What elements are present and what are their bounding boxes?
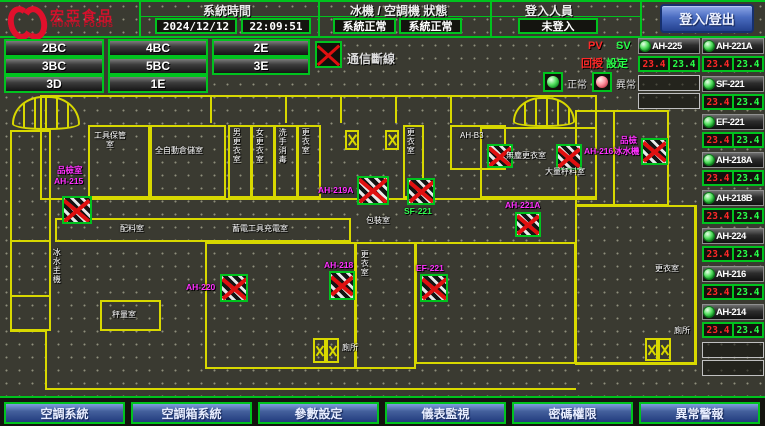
normal-led-icon [543, 72, 563, 92]
equipment-name: AH-218A [716, 155, 752, 166]
system-clock-value: 22:09:51 [241, 18, 311, 34]
room-label: 包裝室 [366, 216, 390, 225]
device-label: AH-215 [54, 177, 83, 187]
room-label: 冰水主機 [52, 248, 61, 284]
room-label: 配料室 [120, 224, 144, 233]
equipment-name: AH-224 [716, 231, 746, 242]
wall-segment [395, 97, 397, 123]
pv-value: 23.4 [704, 324, 732, 336]
pv-value: 23.4 [704, 58, 732, 70]
sv-value: 23.4 [732, 286, 762, 298]
device-alarm-icon-ah-221a[interactable] [515, 212, 541, 237]
sv-value: 23.4 [732, 172, 762, 184]
sv-value: 23.4 [732, 248, 762, 260]
equipment-name: AH-221A [716, 41, 752, 52]
nav-button-meter-monitor[interactable]: 儀表監視 [385, 402, 506, 424]
pv-value: 23.4 [704, 286, 732, 298]
pv-value: 23.4 [640, 58, 668, 70]
pv-value: 23.4 [704, 134, 732, 146]
equipment-values-ah-225: 23.4 23.4 [638, 56, 700, 72]
equipment-tile-ah-218b[interactable]: AH-218B [702, 190, 764, 206]
wall-segment [55, 218, 351, 242]
wall-segment [695, 205, 697, 364]
sv-value: 23.4 [732, 58, 762, 70]
pv-header: PV [588, 40, 603, 52]
system-date-value: 2024/12/12 [155, 18, 237, 34]
shaft-x-icon [658, 338, 671, 361]
room-label: 更衣室 [655, 264, 679, 273]
system-time-label: 系統時間 [203, 2, 251, 19]
device-alarm-icon-ef-221[interactable] [420, 274, 448, 302]
header-divider [640, 0, 642, 37]
wall-segment [10, 295, 51, 297]
room-label: 女更衣室 [255, 128, 264, 164]
equipment-values-ah-221a: 23.4 23.4 [702, 56, 764, 72]
abnormal-label: 異常 [616, 76, 636, 91]
status-led-icon [704, 193, 714, 203]
floor-button-1e[interactable]: 1E [108, 75, 208, 93]
room-label: 工具保管室 [93, 131, 127, 149]
pv-cn-header: 回授 [581, 55, 603, 71]
floor-button-2bc[interactable]: 2BC [4, 39, 104, 57]
pv-value: 23.4 [704, 248, 732, 260]
equipment-name: AH-216 [716, 269, 746, 280]
device-label: AH-220 [186, 283, 215, 293]
abnormal-led-icon [592, 72, 612, 92]
floor-button-3bc[interactable]: 3BC [4, 57, 104, 75]
floor-button-2e[interactable]: 2E [212, 39, 310, 57]
equipment-values-sf-221: 23.4 23.4 [702, 94, 764, 110]
pv-value: 23.4 [704, 172, 732, 184]
equipment-values-ah-224: 23.4 23.4 [702, 246, 764, 262]
nav-button-ac-system[interactable]: 空調系統 [4, 402, 125, 424]
room-label: 大量秤料室 [545, 167, 585, 176]
header-divider [318, 0, 320, 37]
device-label: 品檢室 [57, 166, 83, 176]
equipment-tile-ah-214[interactable]: AH-214 [702, 304, 764, 320]
shaft-x-icon [385, 130, 399, 150]
nav-button-param-setting[interactable]: 參數設定 [258, 402, 379, 424]
equipment-tile-ah-225[interactable]: AH-225 [638, 38, 700, 54]
login-logout-button[interactable]: 登入/登出 [660, 4, 754, 33]
empty-slot [702, 360, 764, 376]
equipment-values-ah-218b: 23.4 23.4 [702, 208, 764, 224]
equipment-values-ah-216: 23.4 23.4 [702, 284, 764, 300]
nav-button-password-auth[interactable]: 密碼權限 [512, 402, 633, 424]
ac-status-value: 系統正常 [399, 18, 462, 34]
room-label: 男更衣室 [232, 128, 241, 164]
device-alarm-icon-ah-219a[interactable] [357, 176, 389, 205]
sv-value: 23.4 [732, 210, 762, 222]
device-label: AH-218 [324, 261, 353, 271]
equipment-name: AH-214 [716, 307, 746, 318]
device-alarm-icon-ah-215[interactable] [62, 196, 92, 224]
device-label: AH-221A [505, 201, 540, 211]
equipment-tile-ah-216[interactable]: AH-216 [702, 266, 764, 282]
room-label: 全自動倉儲室 [155, 146, 203, 155]
equipment-values-ef-221: 23.4 23.4 [702, 132, 764, 148]
room-label: AH-B3 [460, 131, 484, 140]
room-label: 廁所 [342, 343, 358, 352]
equipment-tile-ah-224[interactable]: AH-224 [702, 228, 764, 244]
equipment-values-ah-218a: 23.4 23.4 [702, 170, 764, 186]
device-alarm-icon-sf-221[interactable] [407, 178, 435, 205]
room-label: 更衣室 [360, 250, 369, 277]
equipment-name: EF-221 [716, 117, 744, 128]
equipment-tile-ef-221[interactable]: EF-221 [702, 114, 764, 130]
wall-segment [10, 330, 47, 332]
comm-loss-label: 通信斷線 [347, 50, 395, 67]
floor-button-4bc[interactable]: 4BC [108, 39, 208, 57]
equipment-tile-ah-218a[interactable]: AH-218A [702, 152, 764, 168]
room-label: 洗手消毒 [278, 128, 287, 164]
wall-segment [285, 97, 287, 123]
device-alarm-icon-ah-218[interactable] [329, 271, 355, 300]
equipment-name: AH-225 [652, 41, 682, 52]
sv-cn-header: 設定 [606, 55, 628, 71]
status-led-icon [704, 231, 714, 241]
shaft-x-icon [326, 338, 339, 363]
wall-segment [45, 330, 47, 389]
equipment-tile-sf-221[interactable]: SF-221 [702, 76, 764, 92]
wall-segment [575, 363, 697, 365]
nav-button-ahu-system[interactable]: 空調箱系統 [131, 402, 252, 424]
wall-segment [150, 125, 226, 198]
comm-loss-icon [315, 41, 342, 68]
wall-segment [340, 97, 342, 123]
wall-segment [10, 130, 51, 331]
footer-bar: 空調系統 空調箱系統 參數設定 儀表監視 密碼權限 異常警報 [0, 396, 765, 426]
shaft-x-icon [645, 338, 658, 361]
device-label: AH-216 [584, 147, 613, 157]
floor-button-3d[interactable]: 3D [4, 75, 104, 93]
login-status-value: 未登入 [518, 18, 598, 34]
empty-slot [638, 75, 700, 91]
sv-header: SV [616, 40, 631, 52]
status-led-icon [640, 41, 650, 51]
wall-segment [415, 242, 576, 364]
normal-label: 正常 [567, 76, 587, 91]
header-divider [490, 0, 492, 37]
floor-button-3e[interactable]: 3E [212, 57, 310, 75]
room-label: 更衣室 [301, 128, 310, 155]
device-label: SF-221 [404, 207, 432, 217]
wall-segment [613, 110, 615, 205]
floor-button-5bc[interactable]: 5BC [108, 57, 208, 75]
sv-value: 23.4 [668, 58, 698, 70]
status-led-icon [704, 269, 714, 279]
login-person-label: 登入人員 [525, 2, 573, 19]
company-logo-icon [6, 3, 46, 35]
pv-value: 23.4 [704, 96, 732, 108]
shaft-x-icon [345, 130, 359, 150]
device-label: AH-219A [318, 186, 353, 196]
room-label: 秤量室 [112, 310, 136, 319]
wall-segment [210, 97, 212, 123]
machine-status-label: 冰機 / 空調機 狀態 [350, 2, 447, 19]
wall-segment [450, 97, 452, 123]
status-led-icon [704, 155, 714, 165]
device-alarm-icon-chiller[interactable] [641, 138, 668, 165]
device-label: EF-221 [416, 264, 444, 274]
empty-slot [638, 93, 700, 109]
status-led-icon [704, 307, 714, 317]
wall-segment [10, 240, 51, 242]
hmi-screen: 宏亞食品 HUNYA FOODS 系統時間 2024/12/12 22:09:5… [0, 0, 765, 426]
status-led-icon [704, 117, 714, 127]
chiller-status-value: 系統正常 [333, 18, 396, 34]
wall-segment [575, 205, 696, 364]
status-led-icon [704, 79, 714, 89]
header-divider [139, 0, 141, 37]
company-name-en: HUNYA FOODS [52, 22, 114, 29]
device-label: 品檢 [620, 136, 637, 146]
equipment-name: SF-221 [716, 79, 744, 90]
empty-slot [702, 342, 764, 358]
device-alarm-icon-ah-220[interactable] [220, 274, 248, 302]
shaft-x-icon [313, 338, 326, 363]
status-led-icon [704, 41, 714, 51]
room-label: 蓄電工具充電室 [232, 224, 288, 233]
equipment-tile-ah-221a[interactable]: AH-221A [702, 38, 764, 54]
sv-value: 23.4 [732, 96, 762, 108]
room-label: 更衣室 [406, 128, 415, 155]
room-label: 無塵更衣室 [506, 151, 546, 160]
room-label: 廁所 [674, 326, 690, 335]
equipment-name: AH-218B [716, 193, 752, 204]
wall-segment [45, 388, 576, 390]
sv-value: 23.4 [732, 134, 762, 146]
nav-button-alarm[interactable]: 異常警報 [639, 402, 760, 424]
device-label: 冰水機 [614, 147, 640, 157]
pv-value: 23.4 [704, 210, 732, 222]
equipment-values-ah-214: 23.4 23.4 [702, 322, 764, 338]
sv-value: 23.4 [732, 324, 762, 336]
